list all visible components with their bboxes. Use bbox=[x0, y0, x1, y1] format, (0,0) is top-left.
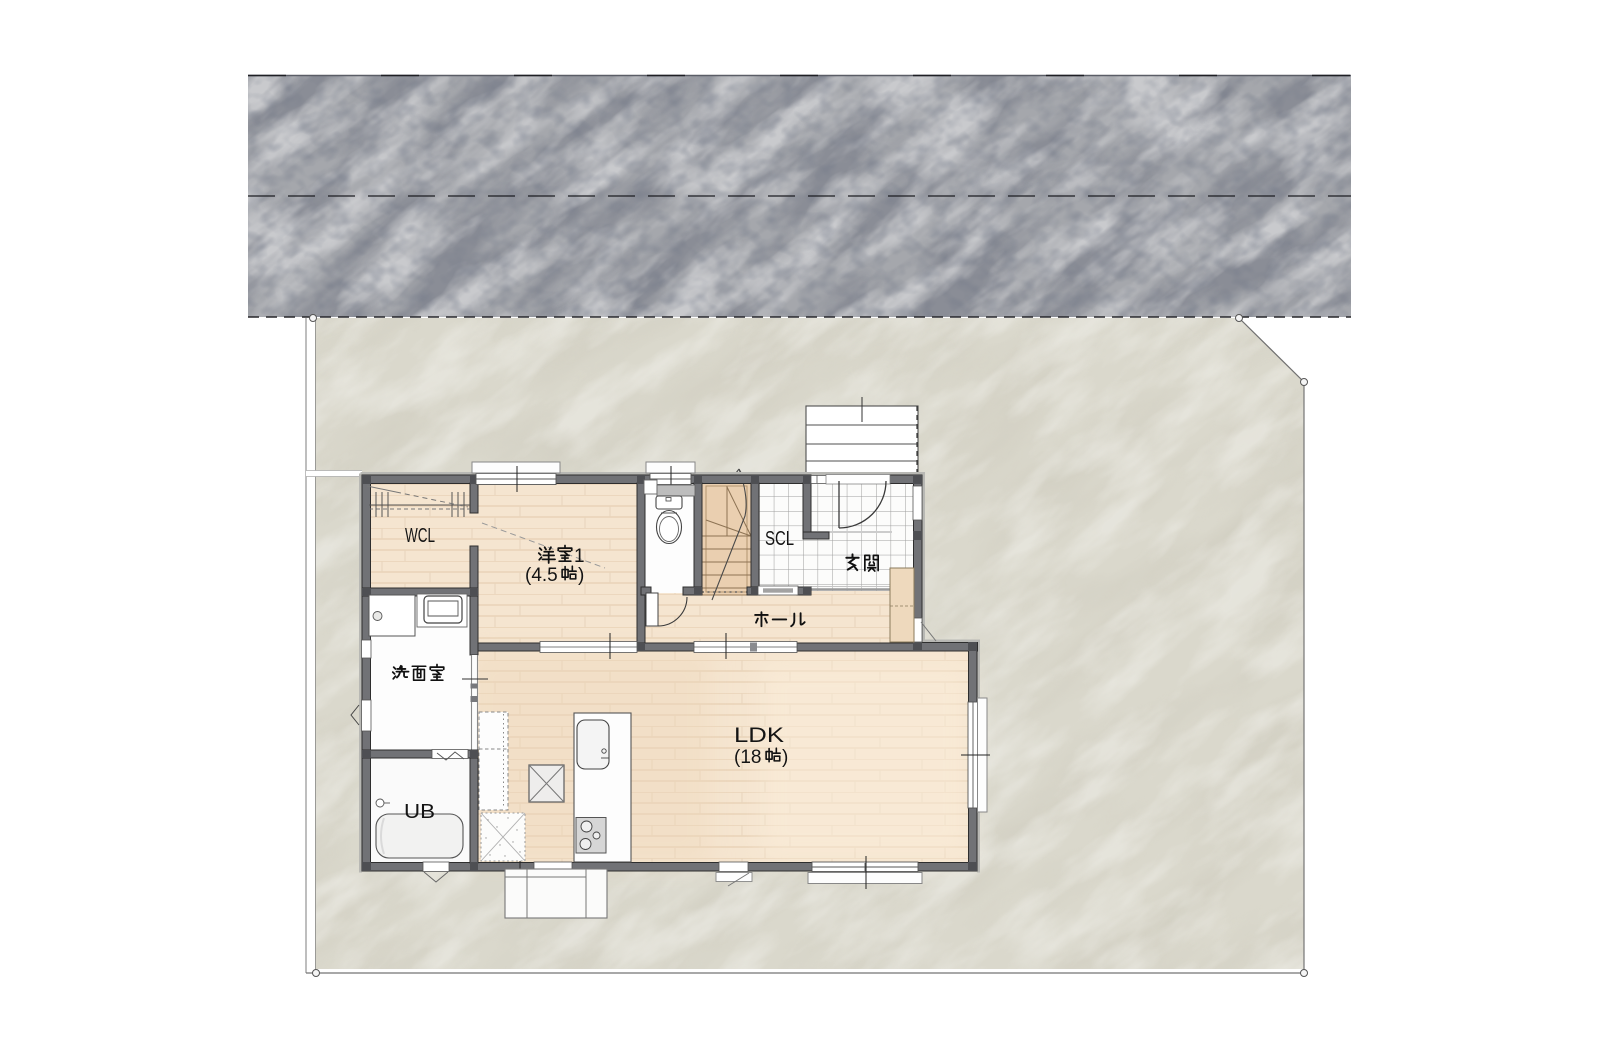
svg-text:LDK: LDK bbox=[734, 724, 784, 747]
svg-text:UB: UB bbox=[404, 801, 435, 823]
svg-text:): ) bbox=[578, 565, 584, 586]
svg-text:): ) bbox=[782, 747, 788, 768]
svg-text:1: 1 bbox=[574, 546, 585, 567]
svg-text:SCL: SCL bbox=[765, 528, 794, 550]
svg-text:(18: (18 bbox=[734, 747, 761, 768]
svg-text:WCL: WCL bbox=[405, 525, 435, 547]
svg-text:(4.5: (4.5 bbox=[525, 565, 558, 586]
